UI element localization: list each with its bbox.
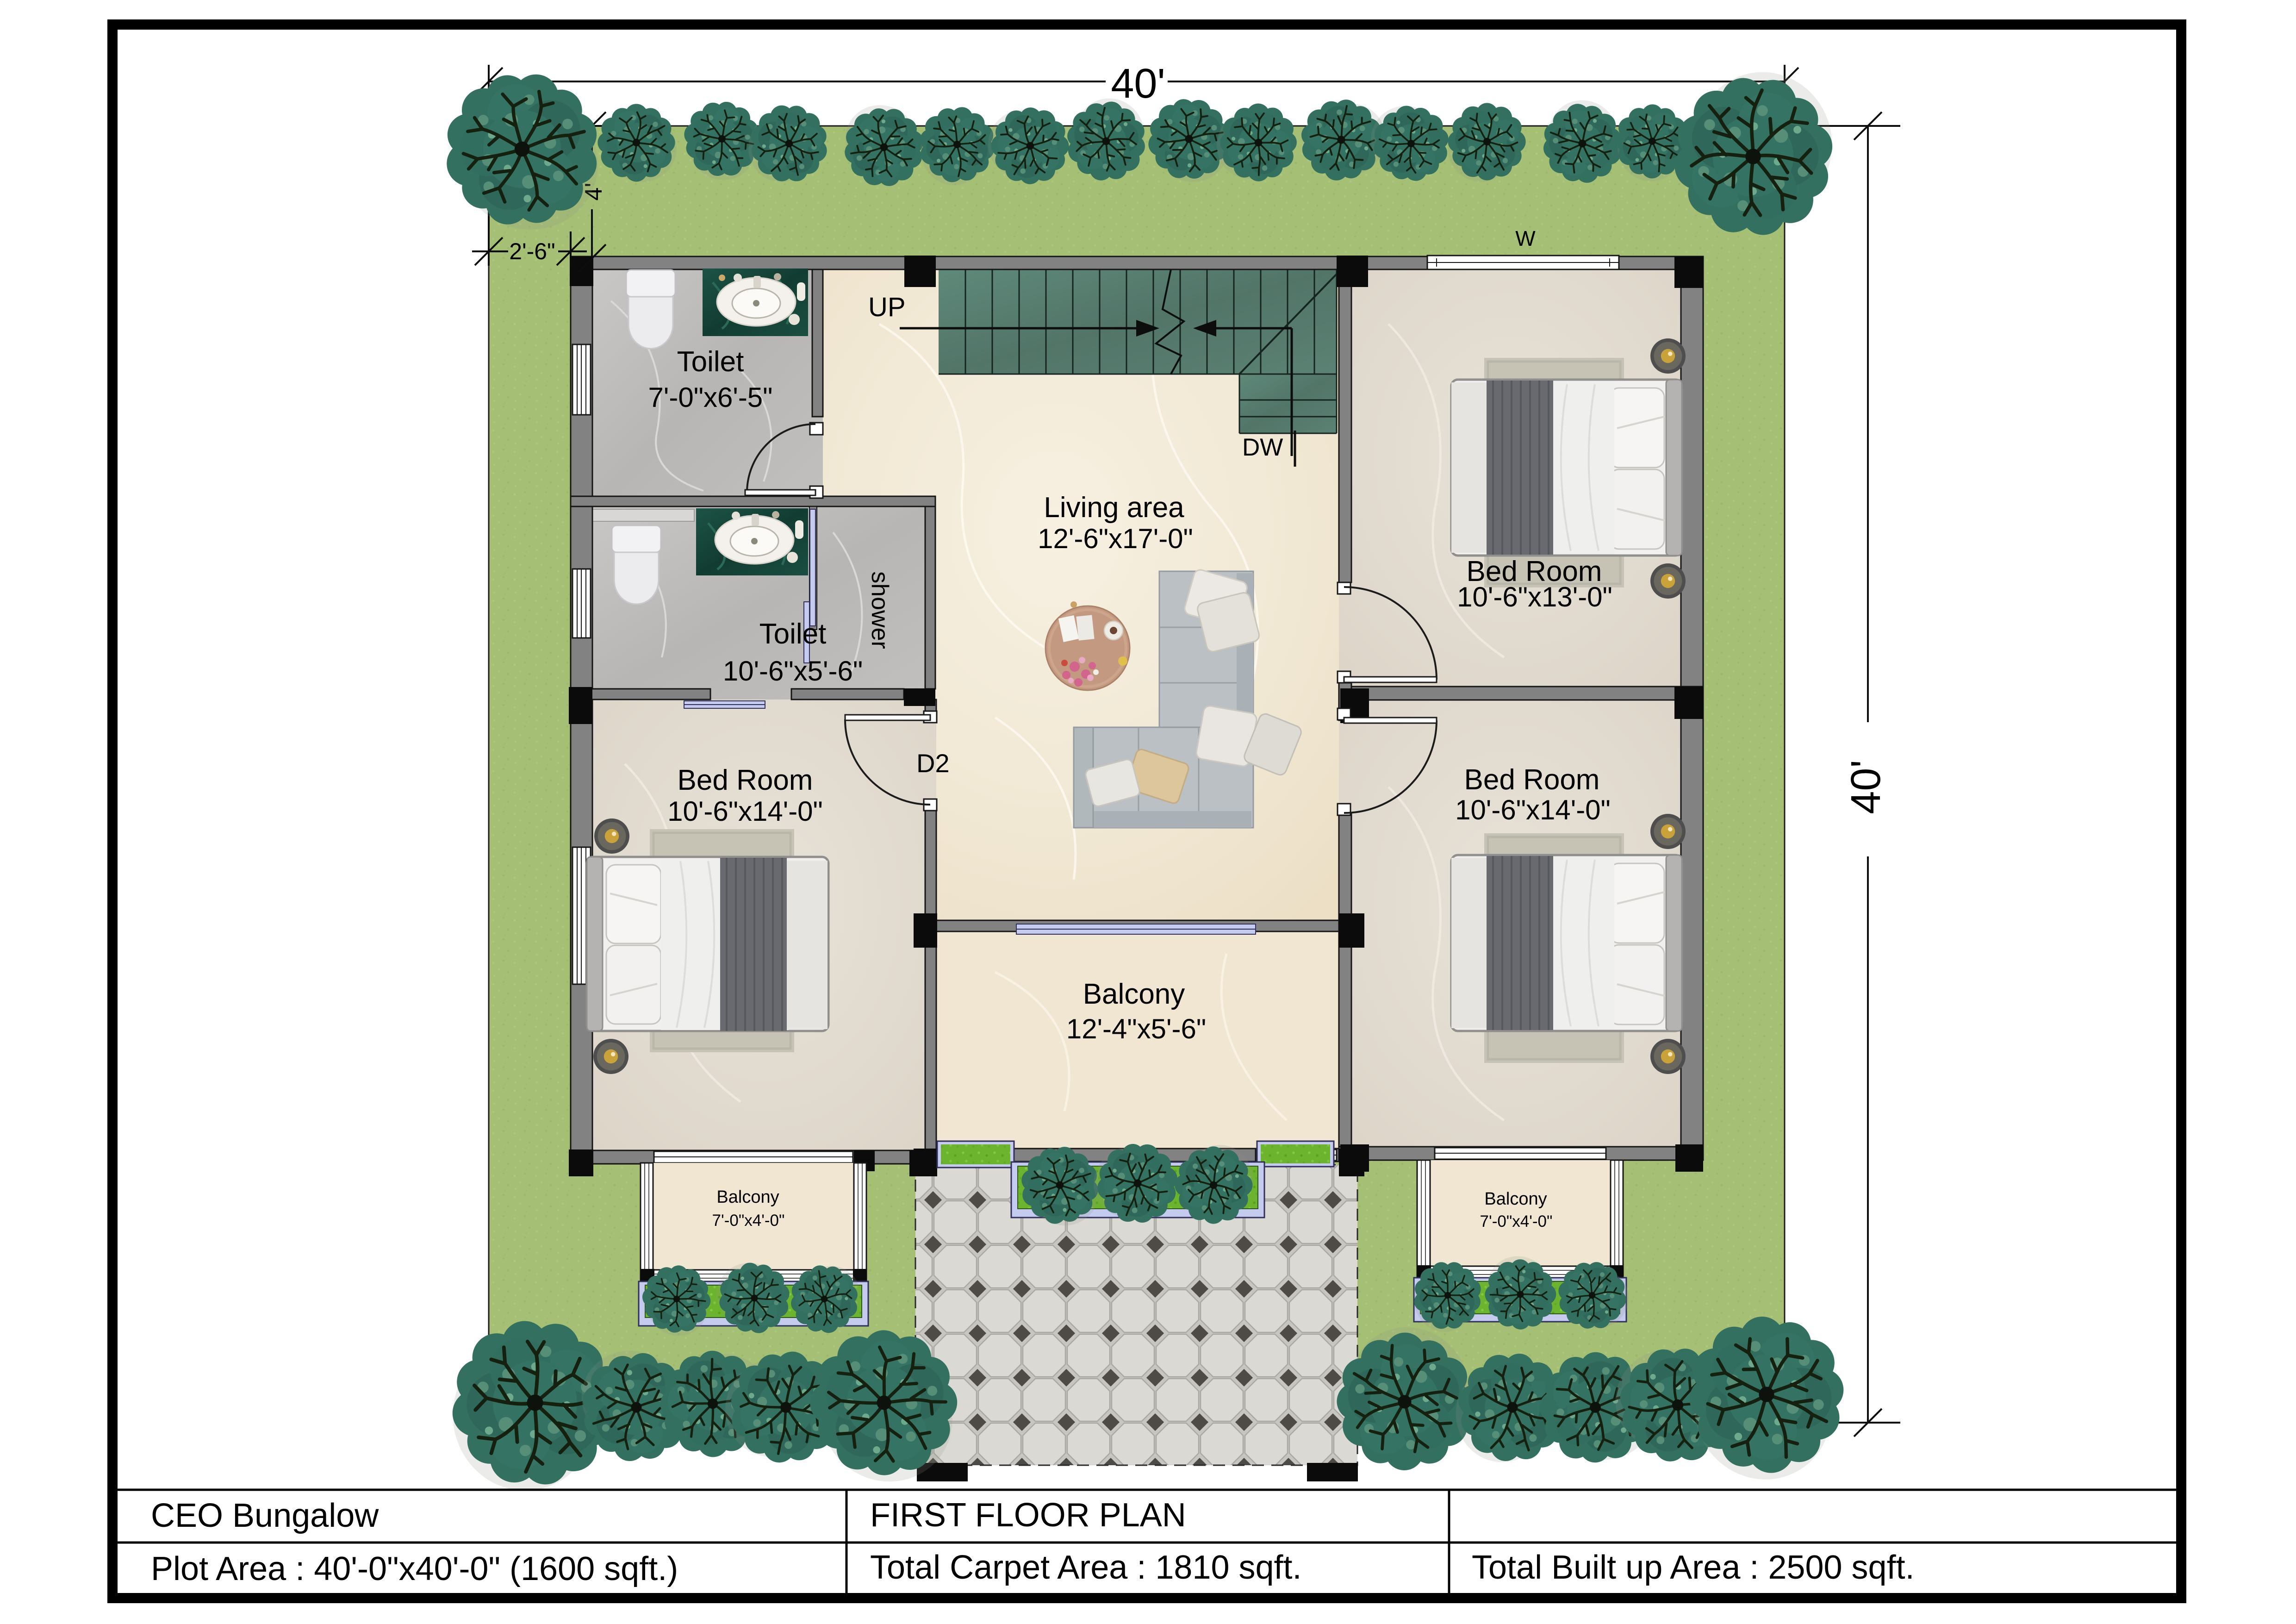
svg-text:Bed Room: Bed Room — [1464, 764, 1600, 796]
svg-text:Bed Room: Bed Room — [678, 764, 813, 796]
svg-text:Total Built up Area : 2500 sqf: Total Built up Area : 2500 sqft. — [1472, 1549, 1915, 1586]
svg-text:Balcony: Balcony — [1484, 1189, 1547, 1209]
svg-text:Balcony: Balcony — [716, 1187, 779, 1207]
svg-text:10'-6"x14'-0": 10'-6"x14'-0" — [667, 796, 823, 827]
svg-text:UP: UP — [868, 292, 906, 322]
svg-text:2'-6": 2'-6" — [509, 238, 555, 264]
svg-text:12'-6"x17'-0": 12'-6"x17'-0" — [1038, 523, 1193, 554]
svg-text:FIRST FLOOR PLAN: FIRST FLOOR PLAN — [870, 1497, 1186, 1534]
svg-text:Balcony: Balcony — [1083, 978, 1185, 1010]
svg-text:Total Carpet Area : 1810 sqft.: Total Carpet Area : 1810 sqft. — [870, 1549, 1302, 1586]
svg-text:12'-4"x5'-6": 12'-4"x5'-6" — [1066, 1013, 1206, 1044]
svg-text:W: W — [1515, 226, 1536, 250]
svg-text:40': 40' — [1843, 760, 1889, 814]
svg-text:shower: shower — [866, 571, 893, 649]
svg-text:Living area: Living area — [1044, 492, 1184, 524]
svg-text:10'-6"x14'-0": 10'-6"x14'-0" — [1455, 794, 1611, 825]
svg-text:D2: D2 — [916, 749, 950, 778]
svg-text:Toilet: Toilet — [677, 346, 744, 378]
svg-text:10'-6"x5'-6": 10'-6"x5'-6" — [723, 656, 863, 687]
svg-text:7'-0"x6'-5": 7'-0"x6'-5" — [648, 382, 773, 413]
svg-text:10'-6"x13'-0": 10'-6"x13'-0" — [1457, 581, 1612, 612]
svg-text:7'-0"x4'-0": 7'-0"x4'-0" — [1480, 1212, 1553, 1230]
svg-text:7'-0"x4'-0": 7'-0"x4'-0" — [712, 1212, 785, 1230]
svg-text:Toilet: Toilet — [759, 618, 827, 650]
svg-text:Plot Area : 40'-0"x40'-0" (160: Plot Area : 40'-0"x40'-0" (1600 sqft.) — [151, 1550, 678, 1587]
svg-text:CEO Bungalow: CEO Bungalow — [151, 1497, 379, 1534]
svg-text:DW: DW — [1242, 434, 1283, 461]
